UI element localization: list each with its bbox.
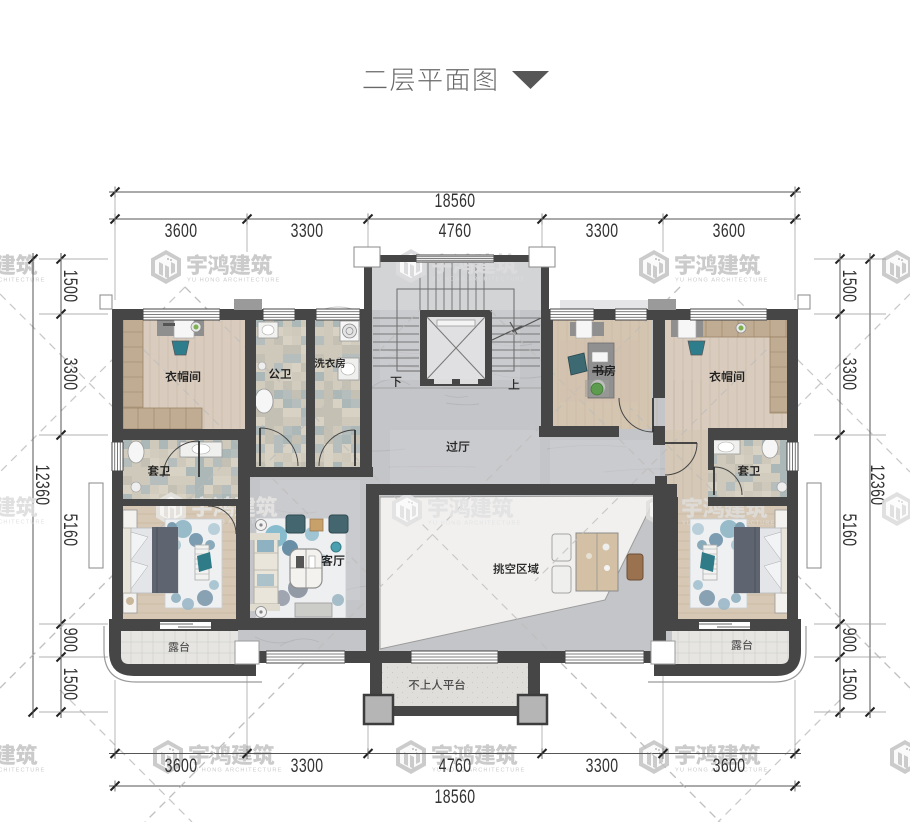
svg-text:3300: 3300	[291, 220, 324, 242]
svg-text:3300: 3300	[838, 358, 860, 391]
svg-text:18560: 18560	[435, 786, 476, 808]
svg-text:3600: 3600	[713, 220, 746, 242]
svg-text:900: 900	[59, 628, 81, 653]
svg-text:4760: 4760	[439, 755, 472, 777]
svg-text:1500: 1500	[59, 270, 81, 303]
svg-text:900: 900	[838, 628, 860, 653]
svg-text:1500: 1500	[838, 270, 860, 303]
svg-text:3300: 3300	[291, 755, 324, 777]
svg-text:3600: 3600	[165, 755, 198, 777]
svg-text:3300: 3300	[586, 755, 619, 777]
svg-text:5160: 5160	[838, 514, 860, 547]
svg-text:3600: 3600	[165, 220, 198, 242]
svg-text:5160: 5160	[59, 514, 81, 547]
svg-text:3300: 3300	[59, 358, 81, 391]
svg-text:4760: 4760	[439, 220, 472, 242]
svg-text:1500: 1500	[59, 668, 81, 701]
svg-text:3600: 3600	[713, 755, 746, 777]
svg-text:1500: 1500	[838, 668, 860, 701]
svg-text:3300: 3300	[586, 220, 619, 242]
svg-text:18560: 18560	[435, 190, 476, 212]
